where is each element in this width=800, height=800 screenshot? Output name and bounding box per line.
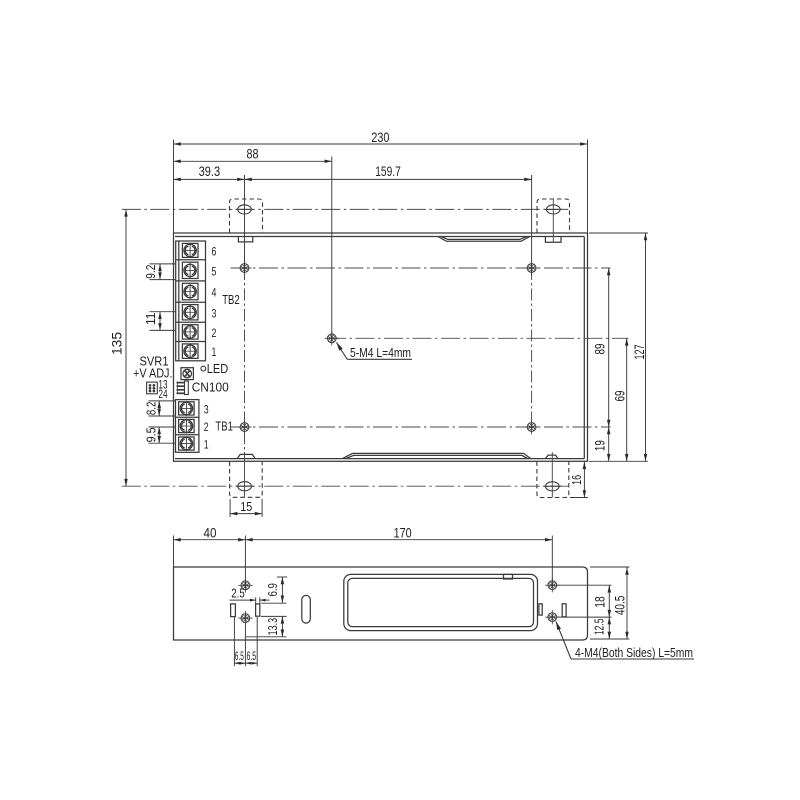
- svg-text:9.2: 9.2: [144, 265, 158, 279]
- svg-text:6: 6: [212, 244, 217, 258]
- svg-text:15: 15: [240, 500, 252, 514]
- svg-text:2: 2: [204, 420, 209, 434]
- svg-text:6.5: 6.5: [247, 651, 257, 663]
- svg-text:39.3: 39.3: [199, 163, 221, 179]
- svg-text:19: 19: [592, 440, 608, 451]
- svg-text:2: 2: [212, 326, 217, 340]
- svg-text:40.5: 40.5: [611, 595, 627, 615]
- svg-text:18: 18: [592, 596, 608, 608]
- svg-text:230: 230: [371, 129, 389, 145]
- svg-text:24: 24: [158, 387, 167, 401]
- svg-text:5: 5: [212, 264, 217, 278]
- svg-text:89: 89: [592, 343, 608, 354]
- svg-text:4: 4: [212, 286, 217, 300]
- svg-text:4-M4(Both Sides) L=5mm: 4-M4(Both Sides) L=5mm: [575, 646, 693, 660]
- svg-text:12.5: 12.5: [593, 619, 607, 636]
- svg-text:9.5: 9.5: [145, 427, 159, 442]
- svg-text:159.7: 159.7: [375, 163, 401, 179]
- svg-text:3: 3: [212, 306, 217, 320]
- svg-text:11: 11: [144, 313, 158, 326]
- svg-text:40: 40: [204, 524, 217, 540]
- svg-text:1: 1: [204, 438, 209, 452]
- svg-text:13.3: 13.3: [266, 618, 280, 636]
- svg-text:69: 69: [612, 390, 628, 401]
- svg-text:2.5: 2.5: [231, 587, 245, 601]
- svg-text:127: 127: [631, 344, 647, 359]
- svg-text:LED: LED: [207, 361, 229, 376]
- svg-text:135: 135: [109, 332, 125, 355]
- svg-text:CN100: CN100: [192, 380, 229, 395]
- svg-text:6.9: 6.9: [266, 583, 280, 597]
- svg-text:88: 88: [247, 145, 259, 161]
- svg-text:16: 16: [570, 475, 584, 485]
- svg-text:TB1: TB1: [215, 419, 233, 434]
- svg-text:5-M4 L=4mm: 5-M4 L=4mm: [350, 346, 411, 360]
- svg-text:TB2: TB2: [222, 292, 240, 307]
- svg-text:6.5: 6.5: [235, 651, 244, 663]
- svg-text:170: 170: [394, 524, 412, 540]
- svg-text:1: 1: [212, 345, 217, 359]
- svg-text:8.2: 8.2: [145, 402, 159, 416]
- svg-text:3: 3: [204, 402, 209, 416]
